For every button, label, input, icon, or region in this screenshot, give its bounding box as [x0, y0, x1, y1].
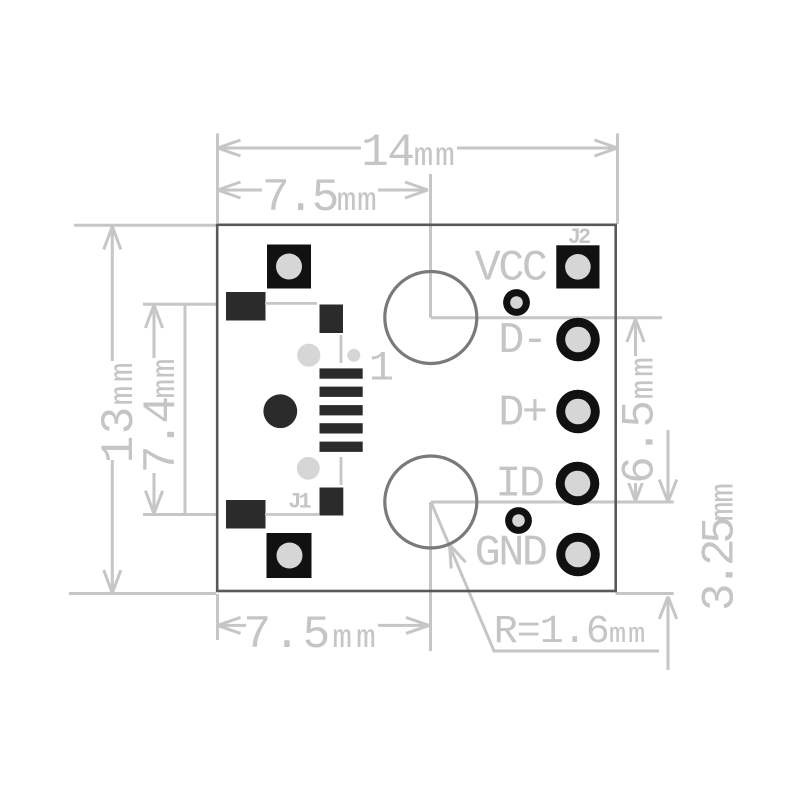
svg-text:ID: ID [495, 461, 543, 510]
svg-text:D+: D+ [498, 390, 546, 439]
svg-text:J1: J1 [288, 489, 311, 514]
svg-text:GND: GND [475, 530, 546, 579]
svg-text:D-: D- [498, 317, 545, 366]
svg-text:1: 1 [369, 345, 394, 393]
svg-text:VCC: VCC [475, 245, 547, 294]
svg-text:J2: J2 [568, 225, 590, 250]
